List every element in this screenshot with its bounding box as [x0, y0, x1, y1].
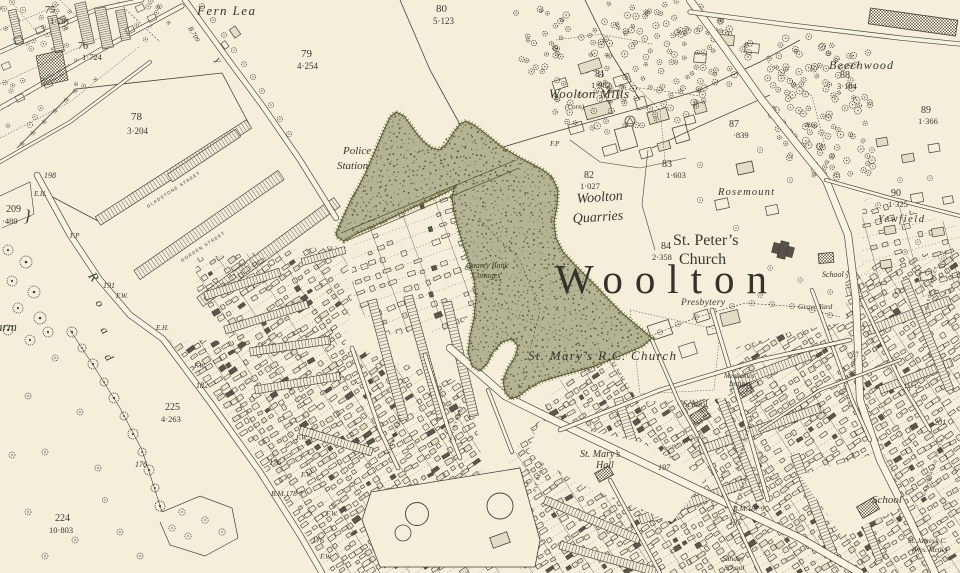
- svg-text:Rosemount: Rosemount: [717, 187, 775, 198]
- svg-text:School: School: [724, 563, 744, 572]
- svg-text:Mechanics’: Mechanics’: [723, 372, 757, 380]
- svg-text:4·263: 4·263: [161, 414, 181, 424]
- svg-text:79: 79: [301, 48, 313, 60]
- svg-text:1·366: 1·366: [918, 116, 938, 126]
- svg-text:3·204: 3·204: [127, 126, 148, 136]
- svg-text:Hall: Hall: [595, 460, 614, 471]
- svg-text:209: 209: [6, 204, 21, 215]
- svg-text:F.W.: F.W.: [325, 510, 338, 518]
- svg-text:St. Mary’s R.C. Church: St. Mary’s R.C. Church: [528, 348, 676, 363]
- svg-text:1·027: 1·027: [580, 181, 600, 191]
- svg-text:Institute: Institute: [728, 380, 752, 388]
- svg-text:176: 176: [135, 460, 147, 469]
- svg-text:225: 225: [165, 402, 180, 413]
- svg-text:·489: ·489: [2, 216, 18, 226]
- svg-text:76: 76: [78, 41, 88, 52]
- svg-text:Grave Yard: Grave Yard: [798, 302, 832, 311]
- svg-text:Quarry Bank: Quarry Bank: [466, 261, 508, 270]
- svg-text:197: 197: [658, 463, 671, 472]
- svg-text:84: 84: [661, 241, 671, 252]
- svg-text:}: }: [24, 206, 31, 225]
- svg-text:Woolton: Woolton: [576, 189, 623, 207]
- svg-text:78: 78: [131, 111, 143, 123]
- svg-text:75: 75: [45, 5, 55, 16]
- svg-text:Sunday: Sunday: [722, 554, 745, 563]
- svg-text:School: School: [822, 270, 845, 279]
- svg-text:St. James’s C.: St. James’s C.: [908, 537, 947, 545]
- svg-text:90: 90: [891, 188, 901, 199]
- svg-text:176: 176: [312, 536, 324, 545]
- svg-text:198: 198: [44, 171, 56, 180]
- svg-text:3·104: 3·104: [837, 81, 858, 91]
- svg-text:Woolton Mills: Woolton Mills: [549, 86, 629, 101]
- svg-text:E.H.: E.H.: [33, 190, 47, 198]
- svg-text:The Le.: The Le.: [904, 384, 922, 390]
- svg-text:School: School: [683, 399, 708, 409]
- svg-text:Church: Church: [679, 251, 726, 268]
- svg-text:89: 89: [921, 105, 931, 116]
- svg-text:1·325: 1·325: [888, 199, 908, 209]
- svg-text:F.W.: F.W.: [295, 434, 308, 442]
- svg-text:Presbytery: Presbytery: [680, 298, 726, 308]
- svg-text:87: 87: [729, 119, 739, 130]
- svg-text:Cottages: Cottages: [472, 271, 500, 280]
- svg-text:F.P: F.P: [69, 232, 80, 240]
- svg-text:F.W.: F.W.: [319, 553, 332, 561]
- svg-text:E.H.: E.H.: [155, 324, 169, 332]
- svg-text:·839: ·839: [733, 130, 749, 140]
- svg-text:F.P: F.P: [549, 140, 560, 148]
- svg-text:10·803: 10·803: [49, 525, 73, 535]
- svg-text:Police: Police: [342, 145, 371, 157]
- svg-text:1·791: 1·791: [50, 16, 70, 26]
- svg-text:St. Peter’s: St. Peter’s: [673, 232, 738, 249]
- svg-text:4·254: 4·254: [297, 61, 318, 71]
- svg-text:F.W.: F.W.: [193, 362, 206, 370]
- svg-text:176: 176: [269, 458, 281, 467]
- svg-text:82: 82: [584, 170, 594, 181]
- svg-text:Beechwood: Beechwood: [829, 58, 894, 72]
- svg-text:191: 191: [103, 281, 115, 290]
- svg-text:(Wes. Meth.): (Wes. Meth.): [912, 546, 948, 554]
- svg-text:81: 81: [595, 69, 605, 80]
- svg-text:201: 201: [934, 418, 946, 427]
- svg-text:School: School: [872, 494, 902, 506]
- svg-text:B.M.197·9: B.M.197·9: [733, 504, 765, 513]
- svg-text:B.M.178·7: B.M.178·7: [271, 489, 303, 498]
- svg-text:1·724: 1·724: [82, 52, 103, 62]
- svg-text:St. Mary’s: St. Mary’s: [580, 449, 620, 460]
- svg-text:1·603: 1·603: [666, 170, 686, 180]
- svg-text:Fern Lea: Fern Lea: [196, 3, 256, 18]
- svg-text:83: 83: [662, 159, 672, 170]
- svg-text:F.W.: F.W.: [300, 471, 313, 479]
- svg-text:80: 80: [436, 3, 448, 15]
- svg-text:Station: Station: [337, 160, 369, 172]
- svg-text:2·358: 2·358: [652, 252, 672, 262]
- svg-text:Farm: Farm: [0, 319, 17, 334]
- svg-text:(Corn): (Corn): [565, 103, 585, 111]
- svg-text:224: 224: [55, 513, 70, 524]
- svg-text:F.W.: F.W.: [115, 292, 128, 300]
- svg-text:5·123: 5·123: [433, 16, 454, 26]
- svg-text:182: 182: [196, 381, 208, 390]
